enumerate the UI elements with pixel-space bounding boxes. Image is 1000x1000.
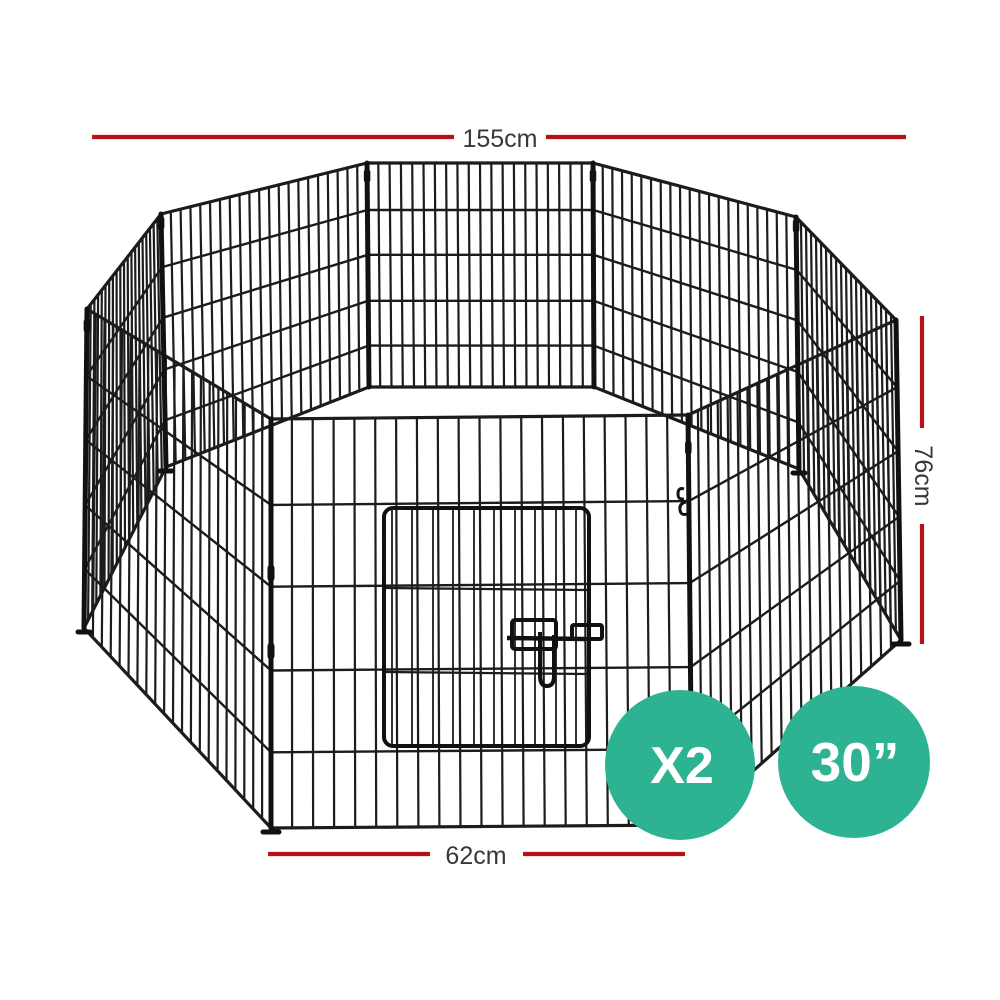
- svg-text:76cm: 76cm: [909, 445, 937, 506]
- svg-text:X2: X2: [650, 737, 714, 795]
- svg-text:155cm: 155cm: [462, 125, 537, 153]
- svg-text:62cm: 62cm: [445, 842, 506, 870]
- svg-text:30”: 30”: [811, 731, 900, 793]
